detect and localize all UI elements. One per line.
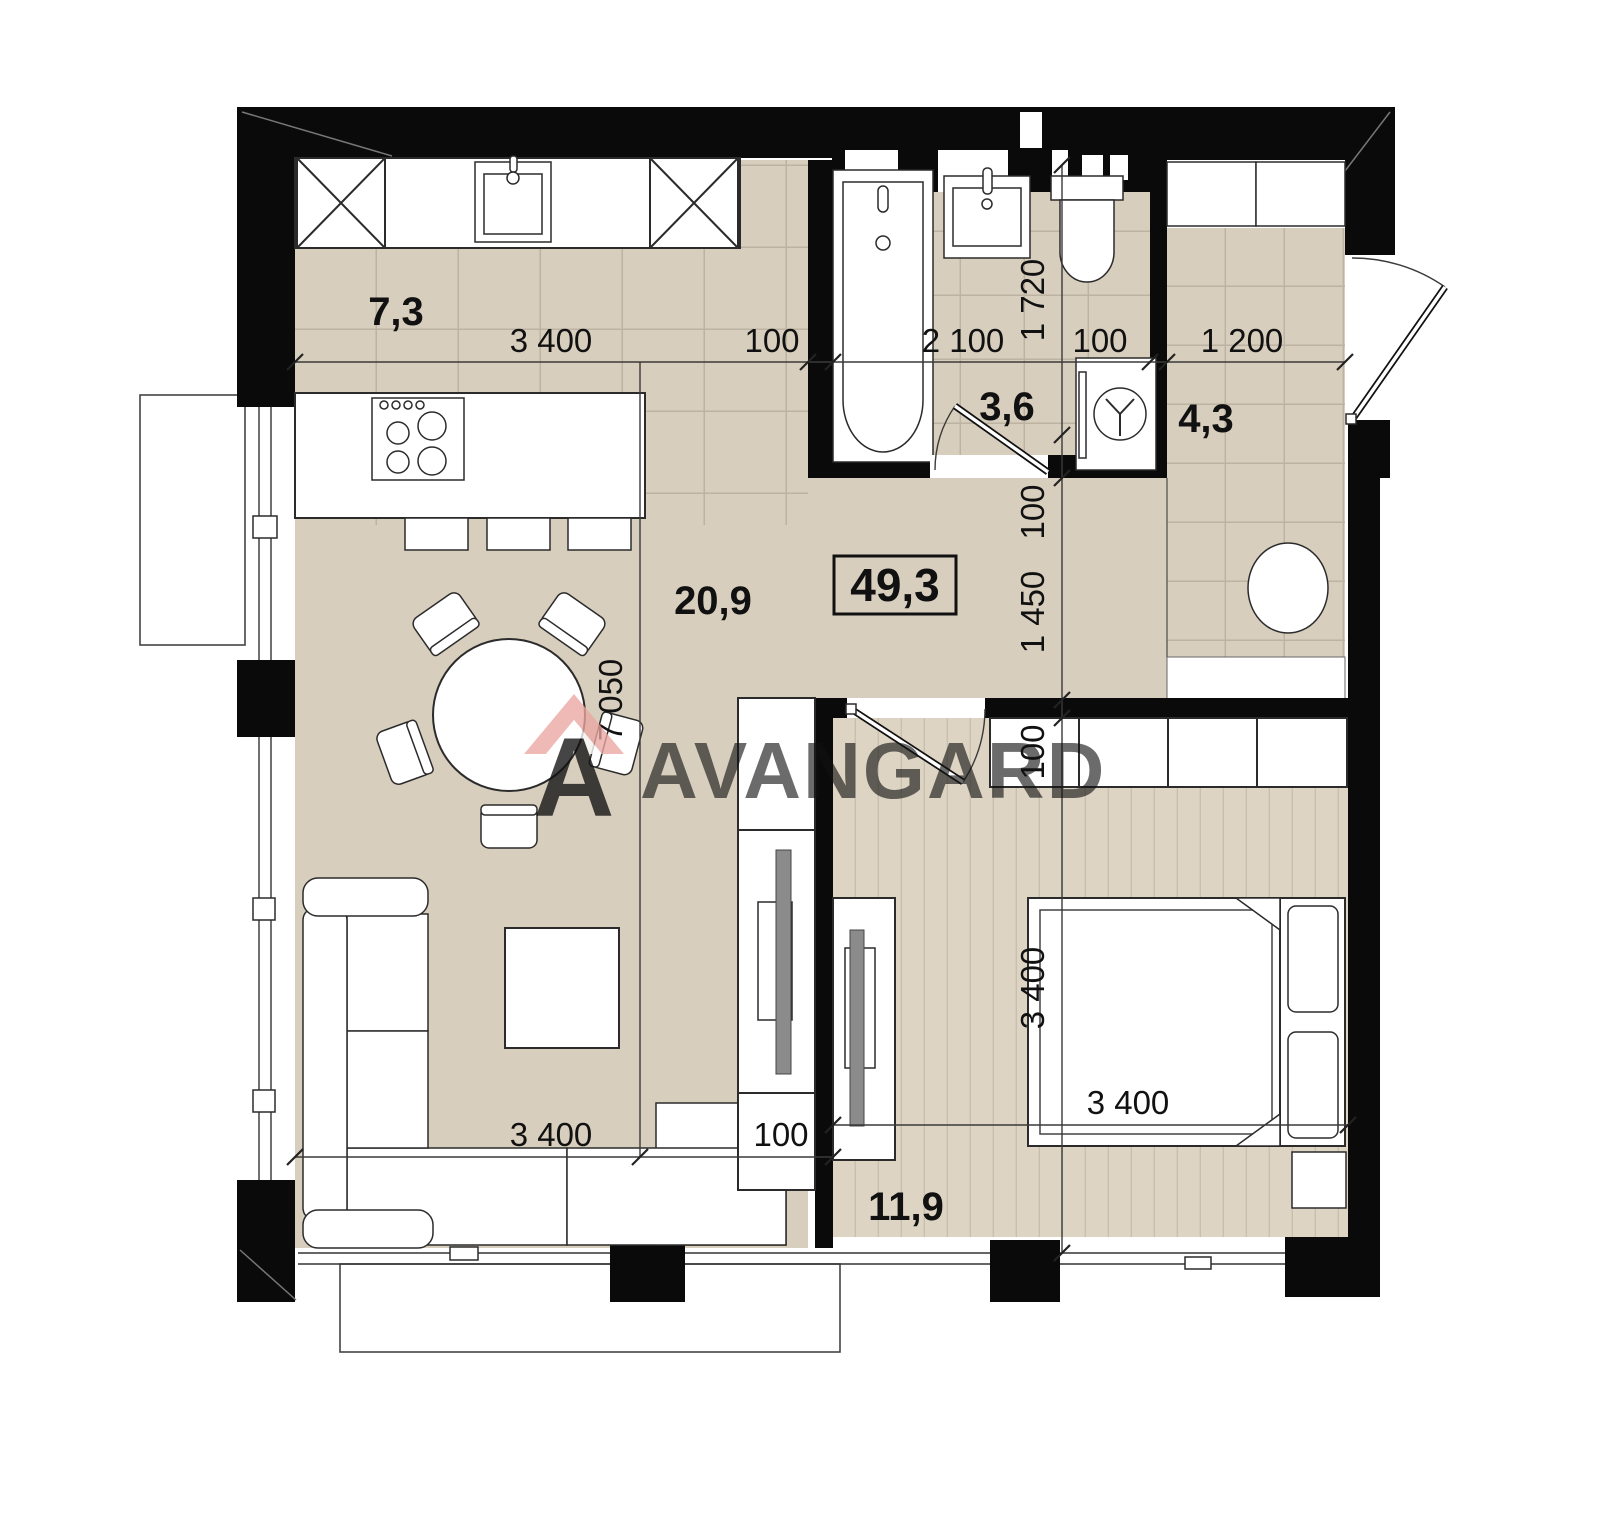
window-left-lower (253, 737, 275, 1180)
wall-right (1348, 478, 1380, 1237)
dim-bath-height: 1 720 (1014, 259, 1051, 342)
bathtub-icon (833, 170, 933, 462)
wall-left-pier (237, 660, 295, 737)
bath-sink-icon (944, 168, 1030, 258)
watermark-text: AVANGARD (640, 726, 1106, 815)
tv-icon (850, 930, 864, 1126)
balcony-left (140, 395, 245, 645)
dim-kitchen-width: 3 400 (510, 322, 593, 359)
dim-wall-5: 100 (753, 1116, 808, 1153)
tv-unit-bedroom (833, 898, 895, 1160)
bathroom-area-label: 3,6 (979, 385, 1035, 429)
hall-closet (1256, 162, 1345, 226)
bar-stool (487, 518, 550, 550)
total-area-badge: 49,3 (834, 556, 956, 614)
hall-closet (1167, 162, 1256, 226)
wall-top-left (237, 107, 832, 158)
chair-icon (481, 805, 537, 848)
coffee-table-icon (505, 928, 619, 1048)
wall-corner-bottom-right (1285, 1237, 1380, 1297)
hallway-area-label: 4,3 (1178, 397, 1234, 441)
hallway-niche (1167, 657, 1345, 700)
balcony-bottom (340, 1264, 840, 1352)
wall-pier-bottom-2 (990, 1240, 1060, 1302)
living-area-label: 20,9 (674, 579, 752, 623)
dim-corridor: 1 450 (1014, 571, 1051, 654)
pouf-icon (1248, 543, 1328, 633)
dim-living-width: 3 400 (510, 1116, 593, 1153)
kitchen-area-label: 7,3 (368, 290, 424, 334)
kitchen-sink-icon (475, 156, 551, 242)
bed-icon (1028, 898, 1345, 1146)
pillow (1288, 1032, 1338, 1138)
pillow (1288, 906, 1338, 1012)
brand-logo-icon: A (524, 694, 624, 840)
wall-kitchen-bath (808, 160, 833, 478)
wall-right-pier (1348, 420, 1390, 478)
stove-icon (372, 398, 464, 480)
dim-bedroom-height: 3 400 (1014, 947, 1051, 1030)
bar-stool (568, 518, 631, 550)
nightstand-icon (1292, 1152, 1346, 1208)
dim-wall-2: 100 (1072, 322, 1127, 359)
floorplan-canvas: 3 400 100 2 100 100 1 200 1 720 100 1 45… (0, 0, 1600, 1538)
bedroom-area-label: 11,9 (868, 1185, 944, 1229)
wall-left-corner (237, 1180, 295, 1302)
wall-corner-top-right (1345, 107, 1395, 255)
window-left-upper (253, 407, 277, 660)
entrance-door (1346, 258, 1445, 424)
washing-machine-icon (1076, 358, 1156, 470)
bedroom-window-sill (833, 1237, 1348, 1253)
tv-icon (776, 850, 791, 1074)
wall-left-upper (237, 107, 295, 407)
dim-bedroom-width: 3 400 (1087, 1084, 1170, 1121)
wall-pier-bottom-1 (610, 1240, 685, 1302)
bar-stool (405, 518, 468, 550)
dim-bath-width: 2 100 (922, 322, 1005, 359)
total-area-label: 49,3 (850, 559, 940, 611)
dim-wall-3: 100 (1014, 484, 1051, 539)
logo-letter: A (534, 715, 615, 840)
dim-hall-width: 1 200 (1201, 322, 1284, 359)
dim-wall-1: 100 (744, 322, 799, 359)
wall-bedroom-top-right (985, 698, 1348, 718)
